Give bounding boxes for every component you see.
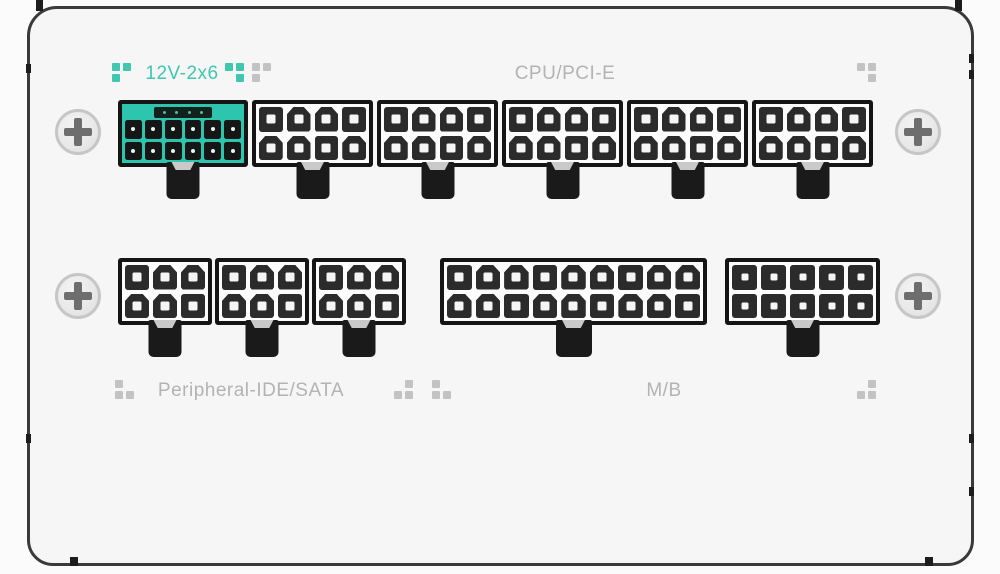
pin-grid [756,104,869,163]
pin-socket [592,107,616,132]
pixel-cell [123,74,131,82]
pixel-accent-icon [225,63,244,82]
pin-socket [618,265,643,290]
pin-socket [315,107,339,132]
pin-grid [506,104,619,163]
pin-socket [440,107,464,132]
connector-latch-tab [546,162,579,199]
pixel-cell [857,63,865,71]
pin-socket [565,107,589,132]
pin-socket [848,294,873,319]
pin-socket [145,120,162,139]
pin-socket [319,265,343,290]
pin-socket [412,107,436,132]
connector-latch-tab [556,320,592,357]
pixel-cell [394,391,402,399]
pin-socket [375,265,399,290]
pin-socket [287,136,311,161]
pin-socket [467,107,491,132]
pixel-cell [126,380,134,388]
pin-socket [347,265,371,290]
pixel-cell [868,63,876,71]
pin-socket [815,136,839,161]
pin-grid [631,104,744,163]
pin-socket [690,136,714,161]
pin-socket [634,107,658,132]
pin-socket [125,294,149,319]
pixel-cell [857,380,865,388]
sense-pin [163,111,166,114]
pin-socket [185,120,202,139]
connector-12v-2x6 [118,100,248,167]
pin-socket [561,294,586,319]
pin-socket [790,294,815,319]
pin-socket [347,294,371,319]
pin-socket [181,294,205,319]
pin-grid [729,262,876,321]
connector-latch-tab [167,162,200,199]
label-peripheral-ide-sata: Peripheral-IDE/SATA [143,379,359,403]
pin-grid [122,262,208,321]
pin-socket [467,136,491,161]
pin-socket [842,136,866,161]
pixel-cell [432,391,440,399]
screw-cross [74,118,82,146]
pixel-cell [236,63,244,71]
pin-socket [717,136,741,161]
pixel-accent-icon [857,63,876,82]
edge-notch [969,70,974,79]
pixel-accent-icon [115,380,134,399]
pin-socket [342,107,366,132]
pin-socket [787,136,811,161]
pixel-cell [405,391,413,399]
sense-pin-slot [154,107,212,118]
pin-socket [278,294,302,319]
pin-socket [790,265,815,290]
connector-motherboard [440,258,707,325]
connector-latch-tab [796,162,829,199]
pin-socket [204,142,221,161]
connector-10pin [725,258,880,325]
edge-notch [969,487,974,496]
pin-socket [447,265,472,290]
pin-socket [590,294,615,319]
pin-socket [153,265,177,290]
pin-grid [219,262,305,321]
pin-socket [819,265,844,290]
screw-cross [74,282,82,310]
pin-grid [381,104,494,163]
pin-socket [145,142,162,161]
phillips-screw-icon [55,273,101,319]
edge-notch [969,54,974,63]
pin-socket [690,107,714,132]
pin-socket [634,136,658,161]
pin-socket [675,265,700,290]
pixel-cell [263,74,271,82]
pixel-cell [405,380,413,388]
pin-socket [165,142,182,161]
phillips-screw-icon [895,273,941,319]
pin-socket [259,107,283,132]
pin-socket [761,265,786,290]
screw-cross [914,282,922,310]
psu-modular-panel-photo: 12V-2x6 CPU/PCI-E Peripheral-IDE/SATA M/… [0,0,1000,574]
connector-cpu-pcie-4 [627,100,748,167]
pin-socket [384,107,408,132]
pin-socket [675,294,700,319]
pin-socket [412,136,436,161]
pin-socket [125,142,142,161]
pixel-cell [857,391,865,399]
phillips-screw-icon [55,109,101,155]
pin-socket [618,294,643,319]
pixel-cell [443,391,451,399]
pixel-cell [225,74,233,82]
label-cpu-pcie: CPU/PCI-E [505,62,625,86]
pin-socket [447,294,472,319]
pin-grid [122,118,244,163]
pixel-cell [443,380,451,388]
pin-socket [509,107,533,132]
sense-pin [200,111,203,114]
edge-notch [969,434,974,443]
connector-latch-tab [149,320,182,357]
pin-socket [819,294,844,319]
pin-socket [384,136,408,161]
pin-socket [848,265,873,290]
pin-socket [440,136,464,161]
pin-socket [647,294,672,319]
pixel-accent-icon [112,63,131,82]
pin-socket [319,294,343,319]
pixel-cell [263,63,271,71]
pin-socket [315,136,339,161]
pin-socket [185,142,202,161]
label-12v-2x6: 12V-2x6 [132,62,232,86]
pixel-accent-icon [394,380,413,399]
pin-socket [224,120,241,139]
connector-peripheral-2 [215,258,309,325]
pin-socket [759,136,783,161]
connector-latch-tab [296,162,329,199]
pin-socket [647,265,672,290]
pixel-accent-icon [857,380,876,399]
pixel-cell [112,63,120,71]
connector-peripheral-1 [118,258,212,325]
pin-socket [761,294,786,319]
pixel-cell [225,63,233,71]
pin-socket [504,265,529,290]
connector-cpu-pcie-5 [752,100,873,167]
edge-notch [26,64,31,73]
sense-pin [175,111,178,114]
pin-socket [476,294,501,319]
pin-socket [342,136,366,161]
pixel-cell [115,391,123,399]
pin-socket [662,136,686,161]
connector-cpu-pcie-2 [377,100,498,167]
pin-socket [278,265,302,290]
pin-socket [533,294,558,319]
pixel-cell [252,63,260,71]
pin-socket [181,265,205,290]
pin-socket [222,294,246,319]
pin-grid [444,262,703,321]
sense-pin [188,111,191,114]
phillips-screw-icon [895,109,941,155]
pixel-accent-icon [252,63,271,82]
pixel-cell [115,380,123,388]
connector-latch-tab [671,162,704,199]
pin-socket [565,136,589,161]
pin-socket [662,107,686,132]
edge-notch [955,0,962,11]
pin-socket [590,265,615,290]
pixel-cell [432,380,440,388]
pin-socket [732,294,757,319]
pin-socket [259,136,283,161]
pixel-cell [868,391,876,399]
pin-socket [717,107,741,132]
pin-socket [787,107,811,132]
pin-socket [287,107,311,132]
pin-socket [592,136,616,161]
pin-socket [509,136,533,161]
screw-cross [914,118,922,146]
connector-latch-tab [421,162,454,199]
pixel-cell [394,380,402,388]
pixel-cell [868,380,876,388]
pin-socket [842,107,866,132]
pixel-cell [236,74,244,82]
pin-socket [250,294,274,319]
pin-socket [561,265,586,290]
edge-notch [36,0,43,11]
connector-cpu-pcie-3 [502,100,623,167]
pin-socket [250,265,274,290]
connector-latch-tab [246,320,279,357]
connector-peripheral-3 [312,258,406,325]
pin-socket [533,265,558,290]
connector-latch-tab [343,320,376,357]
pin-socket [815,107,839,132]
pin-socket [222,265,246,290]
pixel-cell [252,74,260,82]
label-mb: M/B [618,379,710,403]
pixel-accent-icon [432,380,451,399]
pin-socket [153,294,177,319]
pin-socket [732,265,757,290]
pin-socket [537,136,561,161]
pixel-cell [112,74,120,82]
connector-cpu-pcie-1 [252,100,373,167]
pin-grid [256,104,369,163]
pixel-cell [868,74,876,82]
pixel-cell [126,391,134,399]
pin-socket [125,120,142,139]
pin-socket [204,120,221,139]
pin-socket [537,107,561,132]
pin-socket [224,142,241,161]
connector-latch-tab [786,320,819,357]
pin-socket [375,294,399,319]
pin-socket [165,120,182,139]
edge-notch [26,434,31,443]
pin-socket [476,265,501,290]
edge-notch [70,557,78,566]
pin-socket [759,107,783,132]
pin-socket [125,265,149,290]
pixel-cell [857,74,865,82]
edge-notch [925,557,933,566]
pin-grid [316,262,402,321]
pin-socket [504,294,529,319]
pixel-cell [123,63,131,71]
